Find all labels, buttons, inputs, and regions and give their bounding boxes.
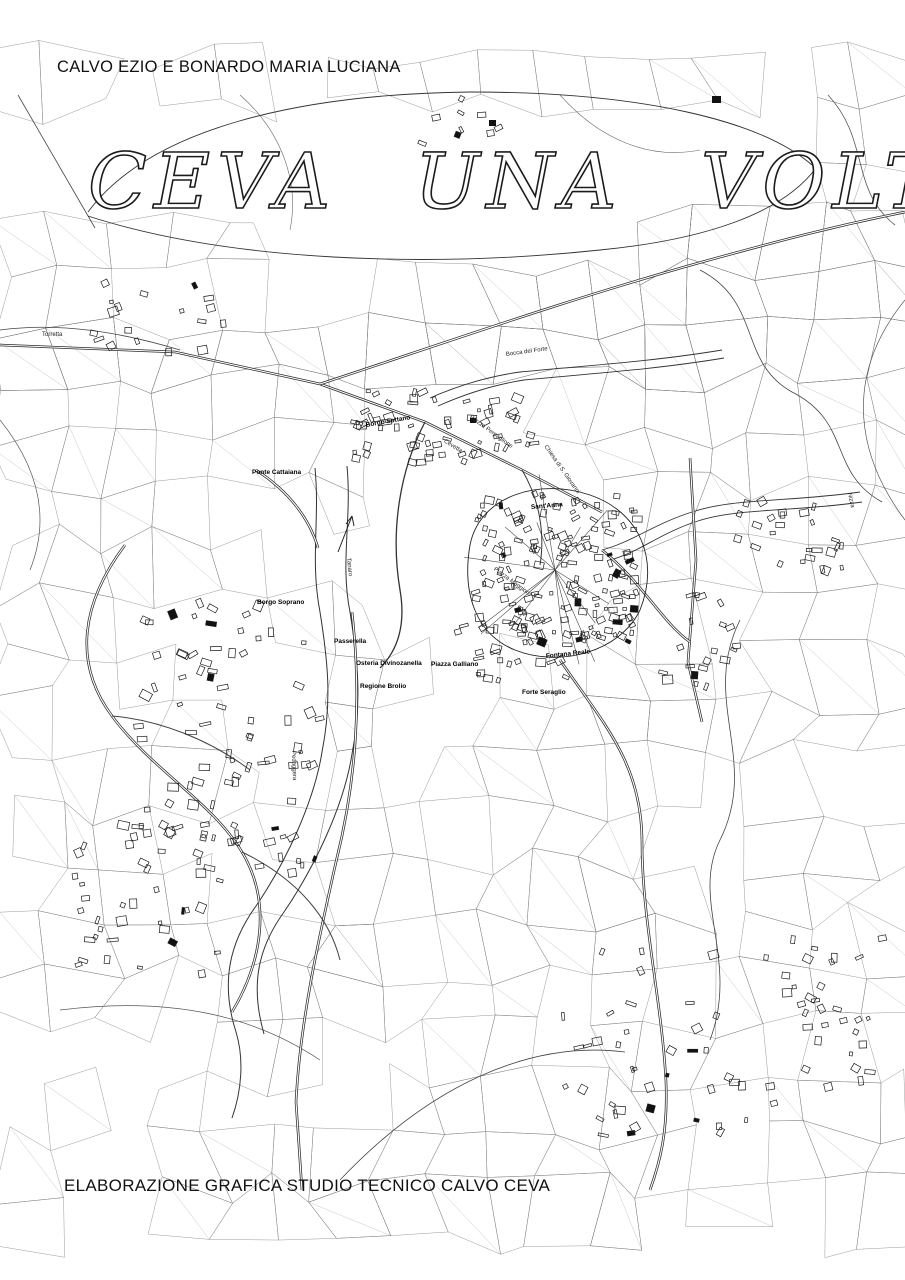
map-label-regione-brolio: Regione Brolio [360,684,406,691]
map-label-borgo-soprano: Borgo Soprano [257,600,304,607]
map-label-osteria: Osteria Divinozanella [356,661,422,668]
credit-line: ELABORAZIONE GRAFICA STUDIO TECNICO CALV… [64,1176,550,1196]
map-label-ponte-cattaiana: Ponte Cattaiana [252,470,301,477]
map-label-forte-seraglio: Forte Seraglio [522,690,566,697]
map-label-torretta: Torretta [42,332,62,338]
map-label-passerella: Passerella [334,639,366,646]
map-page: CALVO EZIO E BONARDO MARIA LUCIANA CEVA … [0,0,905,1280]
author-line: CALVO EZIO E BONARDO MARIA LUCIANA [57,58,401,77]
map-label-pedaggera: Pedaggera [290,751,297,781]
map-label-piazza-galliano: Piazza Galliano [431,662,478,669]
map-title: CEVA UNA VOLTA [88,138,818,227]
